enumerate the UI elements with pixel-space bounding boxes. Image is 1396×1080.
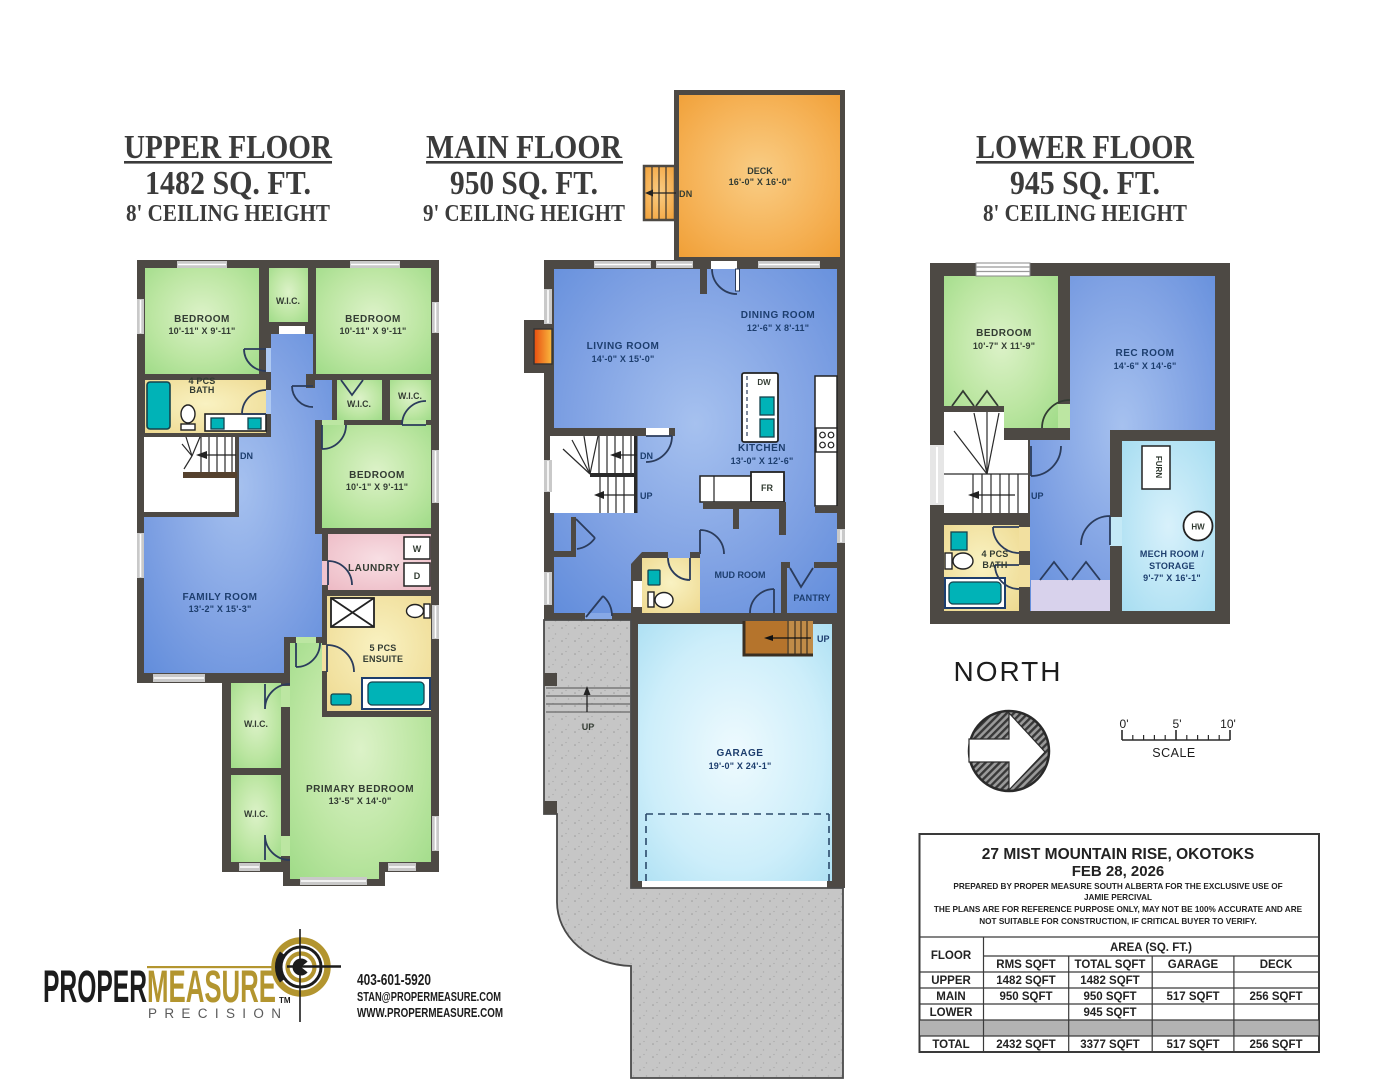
svg-text:W.I.C.: W.I.C. — [347, 399, 371, 409]
svg-text:DN: DN — [240, 451, 253, 461]
svg-text:9' CEILING HEIGHT: 9' CEILING HEIGHT — [423, 201, 625, 227]
svg-text:16'-0" X 16'-0": 16'-0" X 16'-0" — [729, 177, 792, 187]
svg-text:SCALE: SCALE — [1152, 746, 1196, 760]
svg-text:9'-7" X 16'-1": 9'-7" X 16'-1" — [1143, 573, 1201, 583]
svg-text:DINING ROOM: DINING ROOM — [741, 310, 815, 321]
svg-text:W.I.C.: W.I.C. — [244, 719, 268, 729]
svg-text:GARAGE: GARAGE — [1168, 959, 1219, 971]
svg-text:BEDROOM: BEDROOM — [976, 328, 1032, 339]
svg-text:1482 SQ. FT.: 1482 SQ. FT. — [145, 165, 311, 202]
svg-text:NORTH: NORTH — [953, 656, 1062, 687]
svg-text:13'-0" X 12'-6": 13'-0" X 12'-6" — [731, 456, 794, 466]
svg-text:TM: TM — [279, 996, 291, 1005]
svg-text:FR: FR — [761, 483, 773, 493]
svg-text:GARAGE: GARAGE — [717, 748, 764, 759]
svg-text:UP: UP — [817, 634, 830, 644]
svg-text:MUD ROOM: MUD ROOM — [715, 570, 766, 580]
svg-text:LOWER FLOOR: LOWER FLOOR — [976, 129, 1194, 166]
svg-text:5 PCS: 5 PCS — [369, 643, 396, 653]
svg-text:19'-0" X 24'-1": 19'-0" X 24'-1" — [709, 761, 772, 771]
svg-text:PROPER: PROPER — [43, 961, 147, 1012]
svg-text:10': 10' — [1220, 717, 1236, 731]
svg-text:BEDROOM: BEDROOM — [174, 314, 230, 325]
svg-text:10'-7" X 11'-9": 10'-7" X 11'-9" — [973, 341, 1035, 351]
svg-text:TOTAL SQFT: TOTAL SQFT — [1075, 959, 1146, 971]
svg-text:4 PCS: 4 PCS — [981, 549, 1008, 559]
svg-text:FLOOR: FLOOR — [931, 950, 972, 962]
svg-text:FURN: FURN — [1154, 456, 1163, 478]
svg-text:DECK: DECK — [1260, 959, 1293, 971]
svg-text:3377 SQFT: 3377 SQFT — [1080, 1039, 1139, 1051]
svg-text:BEDROOM: BEDROOM — [349, 470, 405, 481]
svg-text:10'-11" X 9'-11": 10'-11" X 9'-11" — [339, 326, 406, 336]
svg-text:10'-11" X 9'-11": 10'-11" X 9'-11" — [168, 326, 235, 336]
svg-text:DW: DW — [757, 378, 771, 387]
svg-text:LIVING ROOM: LIVING ROOM — [587, 341, 660, 352]
svg-text:LOWER: LOWER — [930, 1007, 973, 1019]
svg-text:FAMILY ROOM: FAMILY ROOM — [183, 592, 258, 603]
svg-text:RMS SQFT: RMS SQFT — [996, 959, 1055, 971]
svg-text:2432 SQFT: 2432 SQFT — [996, 1039, 1055, 1051]
svg-text:UP: UP — [582, 722, 595, 732]
svg-text:14'-6" X 14'-6": 14'-6" X 14'-6" — [1114, 361, 1177, 371]
svg-text:KITCHEN: KITCHEN — [738, 443, 786, 454]
svg-text:BATH: BATH — [982, 560, 1007, 570]
svg-text:403-601-5920: 403-601-5920 — [357, 972, 431, 989]
svg-text:10'-1" X 9'-11": 10'-1" X 9'-11" — [346, 482, 408, 492]
svg-text:UPPER FLOOR: UPPER FLOOR — [124, 129, 332, 166]
svg-text:W.I.C.: W.I.C. — [244, 809, 268, 819]
svg-text:517 SQFT: 517 SQFT — [1166, 1039, 1219, 1051]
svg-text:MAIN FLOOR: MAIN FLOOR — [426, 129, 622, 166]
svg-text:12'-6" X 8'-11": 12'-6" X 8'-11" — [747, 323, 809, 333]
svg-text:0': 0' — [1120, 717, 1129, 731]
svg-text:950 SQ. FT.: 950 SQ. FT. — [450, 165, 598, 202]
svg-text:D: D — [414, 571, 421, 581]
svg-text:THE PLANS ARE FOR REFERENCE PU: THE PLANS ARE FOR REFERENCE PURPOSE ONLY… — [934, 905, 1303, 914]
svg-text:DECK: DECK — [747, 166, 773, 176]
svg-text:REC ROOM: REC ROOM — [1116, 348, 1175, 359]
svg-text:PANTRY: PANTRY — [793, 593, 830, 603]
svg-text:13'-5" X 14'-0": 13'-5" X 14'-0" — [329, 796, 392, 806]
svg-text:STAN@PROPERMEASURE.COM: STAN@PROPERMEASURE.COM — [357, 990, 501, 1004]
svg-text:27 MIST MOUNTAIN RISE, OKOTOKS: 27 MIST MOUNTAIN RISE, OKOTOKS — [982, 846, 1254, 863]
svg-text:WWW.PROPERMEASURE.COM: WWW.PROPERMEASURE.COM — [357, 1006, 503, 1020]
svg-text:MECH ROOM /: MECH ROOM / — [1140, 549, 1204, 559]
svg-text:JAMIE PERCIVAL: JAMIE PERCIVAL — [1084, 893, 1152, 902]
svg-text:MAIN: MAIN — [936, 991, 965, 1003]
svg-text:256 SQFT: 256 SQFT — [1249, 1039, 1302, 1051]
svg-text:PRIMARY BEDROOM: PRIMARY BEDROOM — [306, 784, 414, 795]
svg-text:AREA (SQ. FT.): AREA (SQ. FT.) — [1110, 942, 1192, 954]
svg-text:256 SQFT: 256 SQFT — [1249, 991, 1302, 1003]
svg-text:W: W — [413, 544, 422, 554]
svg-text:8' CEILING HEIGHT: 8' CEILING HEIGHT — [983, 201, 1187, 227]
svg-text:BEDROOM: BEDROOM — [345, 314, 401, 325]
svg-text:13'-2" X 15'-3": 13'-2" X 15'-3" — [189, 604, 252, 614]
svg-text:W.I.C.: W.I.C. — [276, 296, 300, 306]
svg-text:DN: DN — [640, 451, 653, 461]
svg-text:945 SQ. FT.: 945 SQ. FT. — [1010, 165, 1160, 202]
svg-text:W.I.C.: W.I.C. — [398, 391, 422, 401]
svg-text:TOTAL: TOTAL — [932, 1039, 969, 1051]
svg-text:950 SQFT: 950 SQFT — [1083, 991, 1136, 1003]
svg-text:FEB 28, 2026: FEB 28, 2026 — [1072, 863, 1165, 880]
svg-text:NOT SUITABLE FOR CONSTRUCTION,: NOT SUITABLE FOR CONSTRUCTION, IF CRITIC… — [979, 917, 1256, 926]
svg-text:ENSUITE: ENSUITE — [363, 654, 403, 664]
svg-text:UP: UP — [1031, 491, 1044, 501]
svg-text:BATH: BATH — [189, 385, 214, 395]
svg-text:1482 SQFT: 1482 SQFT — [1080, 975, 1139, 987]
svg-text:PRECISION: PRECISION — [148, 1006, 281, 1021]
svg-text:517 SQFT: 517 SQFT — [1166, 991, 1219, 1003]
svg-text:LAUNDRY: LAUNDRY — [348, 563, 400, 574]
svg-text:STORAGE: STORAGE — [1149, 561, 1195, 571]
svg-text:5': 5' — [1173, 717, 1182, 731]
svg-text:HW: HW — [1191, 523, 1205, 532]
svg-text:8' CEILING HEIGHT: 8' CEILING HEIGHT — [126, 201, 330, 227]
svg-text:14'-0" X 15'-0": 14'-0" X 15'-0" — [592, 354, 655, 364]
svg-text:1482 SQFT: 1482 SQFT — [996, 975, 1055, 987]
svg-text:MEASURE: MEASURE — [147, 961, 276, 1012]
svg-text:945 SQFT: 945 SQFT — [1083, 1007, 1136, 1019]
svg-text:UP: UP — [640, 491, 653, 501]
svg-text:UPPER: UPPER — [931, 975, 971, 987]
svg-text:PREPARED BY PROPER MEASURE SOU: PREPARED BY PROPER MEASURE SOUTH ALBERTA… — [953, 882, 1282, 891]
svg-text:950 SQFT: 950 SQFT — [999, 991, 1052, 1003]
svg-text:DN: DN — [679, 189, 692, 199]
